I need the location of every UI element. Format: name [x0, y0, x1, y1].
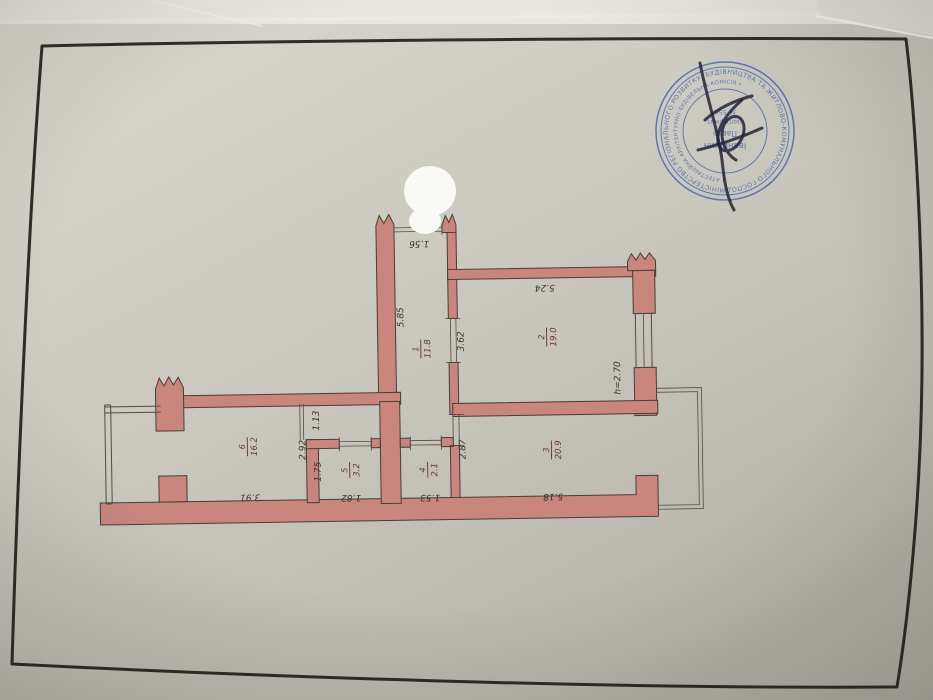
wall-segment	[376, 214, 397, 402]
room-2-number: 2	[537, 334, 546, 339]
wall-segment	[400, 438, 410, 447]
dimension-ceiling-height: h=2.70	[613, 361, 624, 395]
room-1-number: 1	[411, 346, 420, 351]
room-6-area: 16.2	[250, 437, 260, 456]
wall-segment	[633, 270, 656, 313]
dimension-room3-depth: 2.87	[458, 439, 468, 459]
dimension-room2-width: 5.24	[535, 282, 555, 292]
wall-segment	[371, 439, 380, 448]
dimension-passage-width: 1.13	[312, 410, 322, 430]
room-5-area: 3.2	[352, 463, 362, 477]
dimension-entry-door: 1.56	[409, 238, 429, 248]
room-1-area: 11.8	[423, 339, 433, 359]
dimension-room5-depth: 1.75	[314, 461, 324, 481]
wall-segment	[627, 253, 655, 271]
wall-segment	[155, 377, 184, 431]
dimension-room6-width: 3.91	[240, 492, 260, 502]
room-4-number: 4	[418, 467, 427, 472]
photographed-floor-plan-document: 1 11.8 2 19.0 3 20.9 4 2.1 5 3.2 6 16.2	[0, 0, 933, 700]
dimension-room4-width: 1.53	[420, 492, 440, 502]
room-6-number: 6	[238, 444, 247, 449]
room-2-area: 19.0	[549, 327, 559, 346]
wall-segment	[306, 439, 339, 449]
wall-segment	[380, 401, 402, 503]
room-4-area: 2.1	[430, 463, 440, 477]
dimension-room3-width: 5.18	[543, 491, 563, 501]
room-3-area: 20.9	[554, 440, 564, 459]
dimension-room2-depth: 3.62	[457, 331, 467, 351]
room-5-number: 5	[340, 468, 349, 473]
dimension-room5-width: 1.82	[341, 492, 361, 502]
wall-segment	[159, 476, 187, 502]
room-3-number: 3	[542, 447, 551, 452]
document-canvas: 1 11.8 2 19.0 3 20.9 4 2.1 5 3.2 6 16.2	[0, 0, 933, 700]
dimension-corridor-length: 5.85	[396, 307, 406, 327]
wall-segment	[453, 400, 658, 416]
dimension-hall-depth: 2.92	[298, 439, 308, 459]
